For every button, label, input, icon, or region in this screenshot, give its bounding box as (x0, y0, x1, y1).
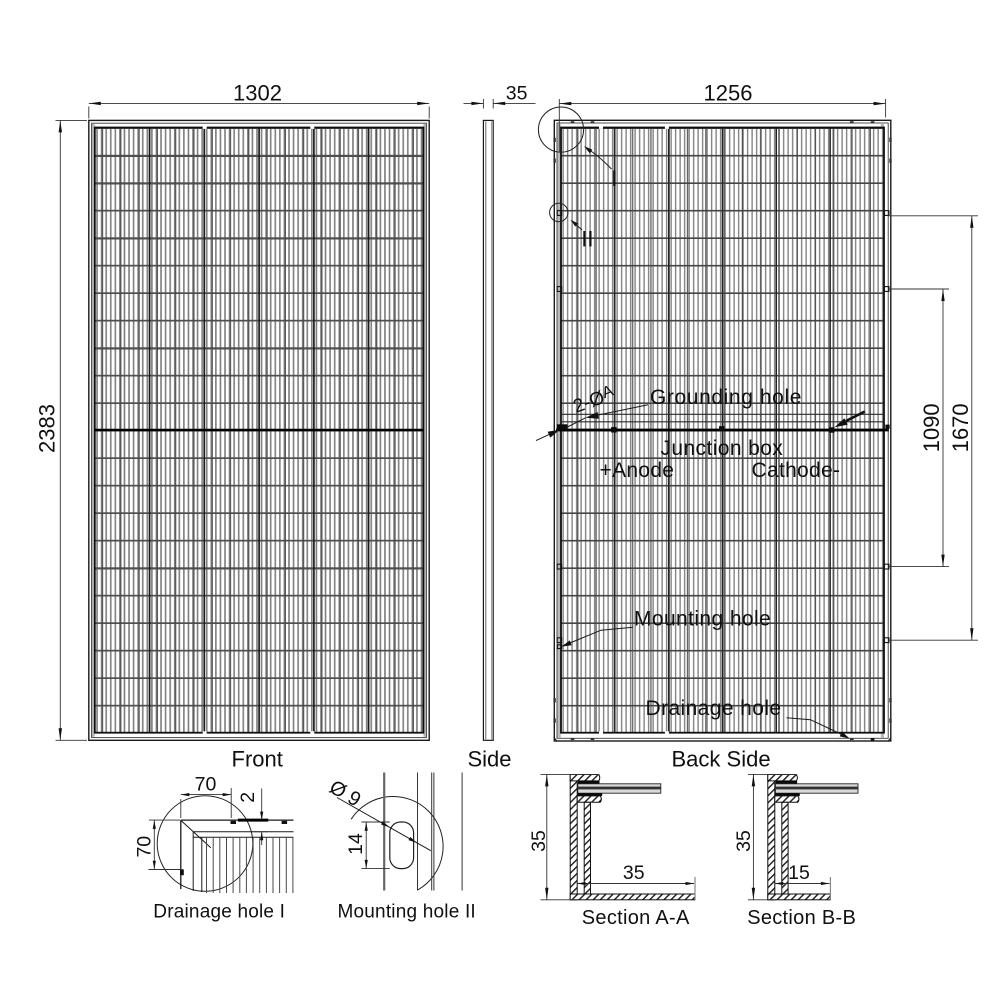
svg-text:70: 70 (134, 836, 156, 858)
svg-text:35: 35 (506, 83, 528, 105)
svg-text:Back Side: Back Side (672, 747, 771, 772)
svg-text:Grounding hole: Grounding hole (650, 386, 802, 409)
svg-text:Section A-A: Section A-A (582, 907, 690, 929)
svg-text:Junction box: Junction box (661, 437, 784, 460)
svg-text:Side: Side (468, 747, 512, 772)
svg-text:14: 14 (345, 833, 367, 855)
svg-text:70: 70 (195, 774, 217, 796)
svg-text:Cathode-: Cathode- (752, 459, 841, 482)
svg-text:Mounting hole II: Mounting hole II (338, 902, 476, 923)
svg-text:1090: 1090 (919, 403, 944, 452)
svg-text:+Anode: +Anode (600, 459, 675, 482)
svg-text:Drainage hole I: Drainage hole I (153, 902, 285, 923)
svg-text:1670: 1670 (948, 403, 973, 452)
svg-text:1302: 1302 (233, 81, 282, 106)
svg-text:15: 15 (788, 862, 810, 884)
svg-text:Section B-B: Section B-B (747, 907, 856, 929)
svg-text:Front: Front (232, 747, 283, 772)
svg-text:Drainage hole: Drainage hole (646, 697, 782, 720)
svg-text:35: 35 (733, 830, 755, 852)
svg-text:1256: 1256 (704, 81, 753, 106)
svg-text:2: 2 (237, 792, 259, 803)
svg-text:35: 35 (623, 862, 645, 884)
svg-text:2383: 2383 (35, 404, 60, 453)
svg-text:Mounting hole: Mounting hole (634, 608, 771, 631)
svg-text:35: 35 (528, 830, 550, 852)
